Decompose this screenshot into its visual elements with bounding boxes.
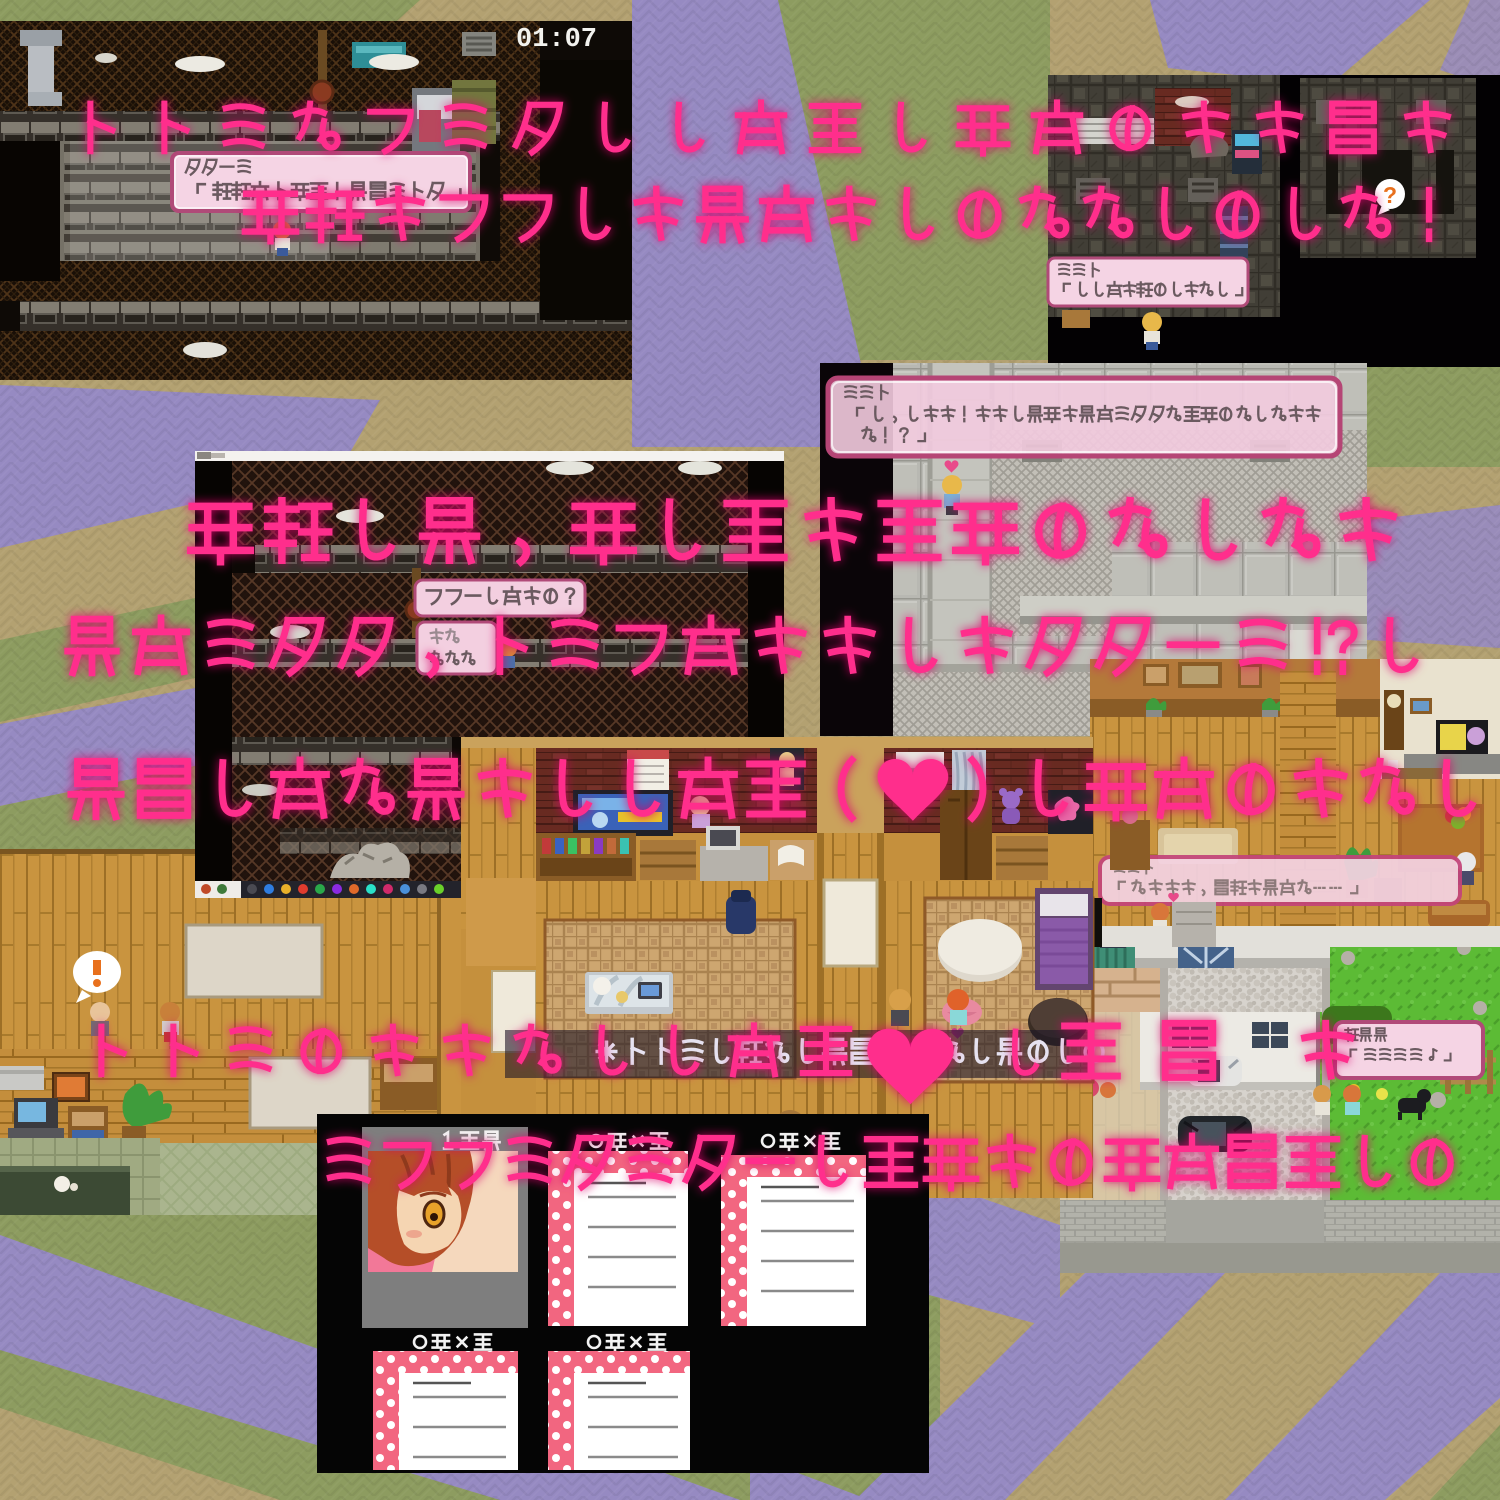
svg-text:01:07: 01:07 [516,25,597,55]
svg-text:?: ? [1383,182,1397,208]
